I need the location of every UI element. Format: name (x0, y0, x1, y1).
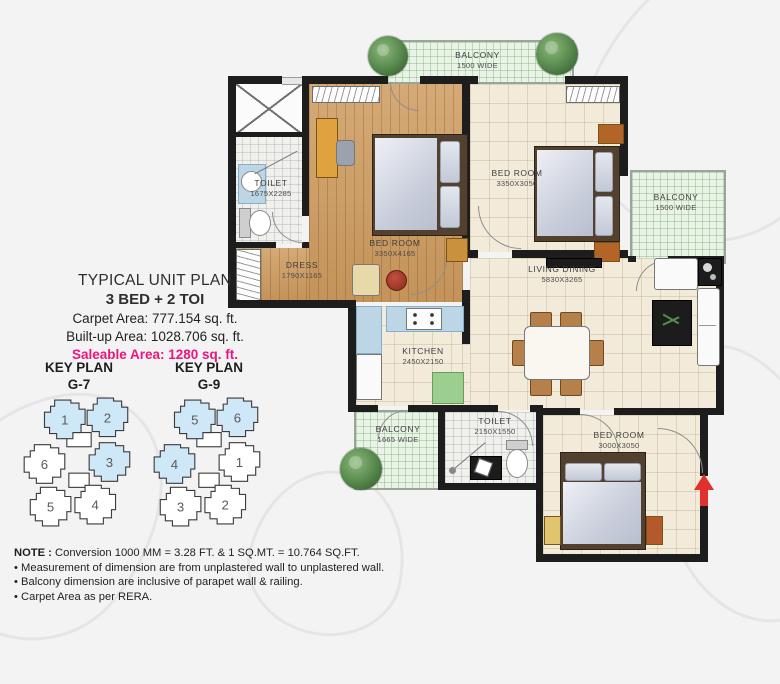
dining-chair (530, 378, 552, 396)
nightstand (598, 124, 624, 144)
room-dim: 3350X4165 (352, 249, 438, 259)
room-name: BED ROOM (352, 238, 438, 249)
note-bullet: • Balcony dimension are inclusive of par… (14, 575, 434, 590)
key-plan-title: KEY PLAN (175, 360, 243, 375)
key-plan-unit-number: 3 (106, 455, 113, 470)
bed-pillow (440, 141, 460, 183)
room-label-toilet1: TOILET 1675X2285 (240, 178, 302, 199)
stove (406, 308, 442, 330)
wall (540, 408, 580, 415)
bed-duvet (563, 482, 641, 544)
room-label-balcony-bl: BALCONY 1665 WIDE (358, 424, 438, 445)
room-label-balcony-right: BALCONY 1500 WIDE (641, 192, 711, 213)
room-label-living: LIVING DINING 5830X3265 (506, 264, 618, 285)
key-plan-unit-number: 5 (191, 412, 198, 427)
room-name: BALCONY (358, 424, 438, 435)
wall (228, 242, 276, 248)
room-dim: 1675X2285 (240, 189, 302, 199)
key-plan-unit-number: 2 (104, 410, 111, 425)
wall (302, 242, 309, 248)
room-dim: 2150X1550 (454, 427, 536, 437)
key-plan-g7: KEY PLAN G-7 1 2 6 3 5 4 (18, 360, 140, 530)
wall (408, 405, 445, 412)
key-plan-unit-number: 4 (92, 497, 99, 512)
key-plan-title: KEY PLAN (45, 360, 113, 375)
dining-chair (588, 340, 604, 366)
room-name: BALCONY (641, 192, 711, 203)
key-plan-code: G-9 (198, 377, 221, 392)
room-dim: 1665 WIDE (358, 435, 438, 445)
note-bullet: • Measurement of dimension are from unpl… (14, 561, 434, 576)
plan-title: TYPICAL UNIT PLAN (35, 272, 275, 290)
wall (565, 76, 628, 84)
corner-table-decor (703, 263, 712, 272)
sofa (697, 288, 720, 366)
note-conversion: NOTE : Conversion 1000 MM = 3.28 FT. & 1… (14, 546, 434, 561)
key-plan-unit-number: 6 (41, 457, 48, 472)
wall (228, 76, 282, 84)
armchair (352, 264, 380, 296)
builtup-area: Built-up Area: 1028.706 sq. ft. (35, 329, 275, 344)
wardrobe-bedroom2 (566, 86, 620, 103)
coffee-table (652, 300, 692, 346)
room-name: TOILET (240, 178, 302, 189)
room-label-bedroom2: BED ROOM 3350X3050 (474, 168, 560, 189)
shower-head (449, 467, 456, 474)
wall (348, 300, 356, 412)
room-name: BALCONY (420, 50, 535, 61)
bed-duvet (537, 150, 593, 236)
room-dim: 5830X3265 (506, 275, 618, 285)
key-plan-unit-number: 2 (222, 497, 229, 512)
room-label-toilet2: TOILET 2150X1550 (454, 416, 536, 437)
key-plan-g9: KEY PLAN G-9 5 6 4 1 3 2 (148, 360, 270, 530)
key-plan-diagram: 1 2 6 3 5 4 (20, 396, 138, 530)
wc-toilet1-bowl (249, 210, 271, 236)
kitchen-sink (432, 372, 464, 404)
dining-table (524, 326, 590, 380)
balcony-plant (340, 448, 382, 490)
key-plan-unit-number: 5 (47, 499, 54, 514)
wall (614, 408, 724, 415)
note-heading: NOTE : (14, 547, 55, 559)
wc-toilet2-bowl (506, 449, 528, 478)
room-label-balcony-top: BALCONY 1500 WIDE (420, 50, 535, 71)
wall (308, 76, 388, 84)
plan-subtitle: 3 BED + 2 TOI (35, 291, 275, 308)
balcony-plant (536, 33, 578, 75)
service-shaft (234, 82, 304, 136)
corner-table (698, 258, 722, 286)
wall (348, 405, 378, 412)
room-label-kitchen: KITCHEN 2450X2150 (386, 346, 460, 367)
wall (530, 405, 543, 412)
room-name: BED ROOM (572, 430, 666, 441)
sofa-cushion-line (699, 325, 716, 326)
room-dim: 2450X2150 (386, 357, 460, 367)
balcony-right-floor (630, 170, 726, 264)
wall (228, 132, 306, 137)
notes-block: NOTE : Conversion 1000 MM = 3.28 FT. & 1… (14, 546, 434, 604)
key-plan-unit-number: 4 (171, 457, 178, 472)
unit-info-block: TYPICAL UNIT PLAN 3 BED + 2 TOI Carpet A… (35, 272, 275, 362)
note-conversion-text: Conversion 1000 MM = 3.28 FT. & 1 SQ.MT.… (55, 547, 360, 559)
ottoman (386, 270, 407, 291)
wall-bottom-exterior (540, 554, 708, 562)
nightstand (446, 238, 468, 262)
key-plan-unit-number: 1 (61, 412, 68, 427)
bed-pillow (604, 463, 641, 481)
room-name: TOILET (454, 416, 536, 427)
bed-duvet (375, 138, 437, 230)
room-name: DRESS (262, 260, 342, 271)
key-plan-diagram: 5 6 4 1 3 2 (150, 396, 268, 530)
nightstand (646, 516, 663, 545)
armchair-living (654, 258, 698, 290)
room-dim: 1500 WIDE (641, 203, 711, 213)
wall (628, 256, 636, 262)
wardrobe-bedroom1 (312, 86, 380, 103)
key-plan-unit-number: 1 (236, 455, 243, 470)
corner-table-decor (710, 274, 716, 280)
wall (438, 483, 543, 490)
note-bullet: • Carpet Area as per RERA. (14, 590, 434, 605)
room-name: BED ROOM (474, 168, 560, 179)
room-label-bedroom3: BED ROOM 3000X3050 (572, 430, 666, 451)
bed-pillow (565, 463, 602, 481)
bed-pillow (595, 152, 613, 192)
kitchen-counter (356, 306, 382, 354)
desk-chair (336, 140, 355, 166)
bed-pillow (595, 196, 613, 236)
room-label-bedroom1: BED ROOM 3350X4165 (352, 238, 438, 259)
wall (438, 405, 498, 412)
nightstand (544, 516, 561, 545)
bed-pillow (440, 186, 460, 228)
room-dim: 3000X3050 (572, 441, 666, 451)
room-dim: 3350X3050 (474, 179, 560, 189)
study-desk (316, 118, 338, 178)
room-name: KITCHEN (386, 346, 460, 357)
room-dim: 1500 WIDE (420, 61, 535, 71)
refrigerator (356, 354, 382, 400)
key-plan-code: G-7 (68, 377, 91, 392)
key-plan-unit-number: 3 (177, 499, 184, 514)
room-name: LIVING DINING (506, 264, 618, 275)
dining-chair (560, 378, 582, 396)
wall (302, 76, 309, 216)
balcony-plant (368, 36, 408, 76)
wall (438, 405, 445, 490)
key-plan-unit-number: 6 (234, 410, 241, 425)
carpet-area: Carpet Area: 777.154 sq. ft. (35, 311, 275, 326)
